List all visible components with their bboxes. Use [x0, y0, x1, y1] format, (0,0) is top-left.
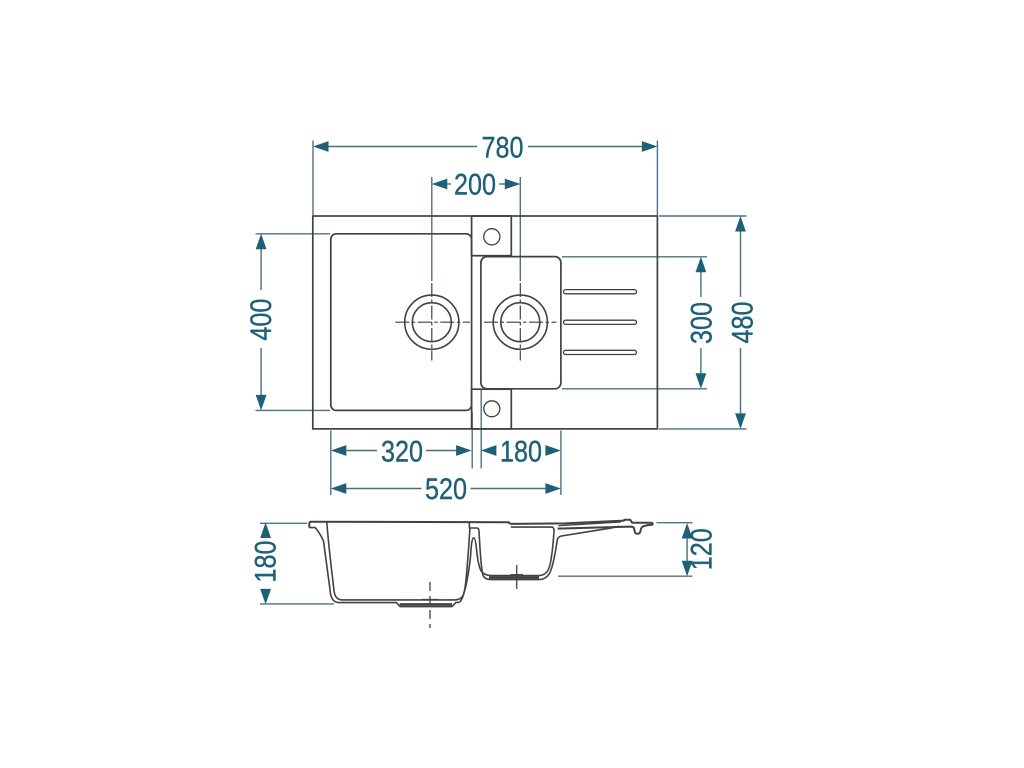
- svg-text:480: 480: [726, 302, 759, 344]
- svg-text:300: 300: [686, 302, 719, 344]
- svg-text:180: 180: [500, 435, 542, 468]
- svg-text:320: 320: [381, 435, 423, 468]
- svg-text:400: 400: [245, 299, 278, 341]
- svg-text:780: 780: [482, 132, 524, 165]
- svg-text:120: 120: [686, 528, 719, 570]
- svg-text:200: 200: [454, 169, 496, 202]
- svg-text:520: 520: [425, 473, 467, 506]
- svg-text:180: 180: [250, 541, 283, 583]
